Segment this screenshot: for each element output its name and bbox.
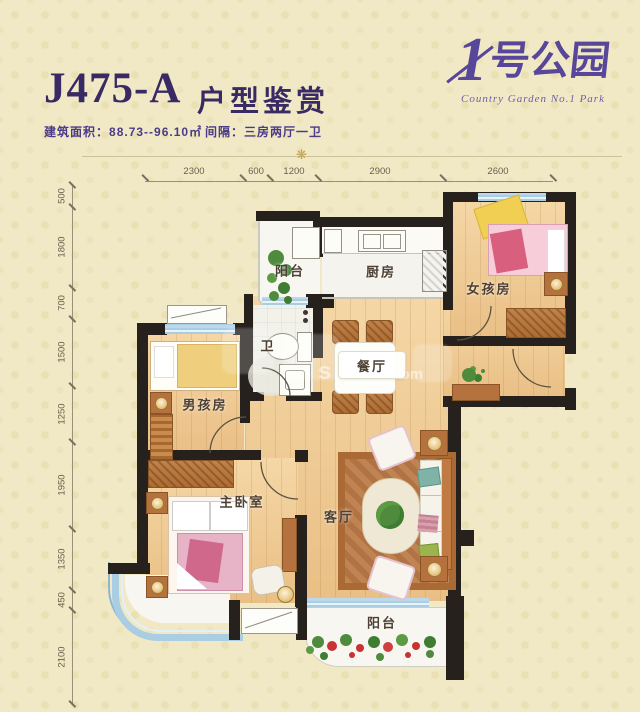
room-label-kitchen: 厨房 [366,262,396,281]
floor-plan: s .com 阳台 厨房 女孩房 卫 餐厅 男孩房 主卧室 客厅 阳台 [0,0,640,712]
room-label-balcony-top: 阳台 [275,261,305,280]
window-sill-diagonal [245,612,292,628]
room-label-balcony-bottom: 阳台 [367,613,397,632]
dining-label-pill: 餐厅 [338,351,406,379]
master-door-arc [261,462,298,499]
room-label-dining: 餐厅 [357,356,387,375]
boy-room-door-arc [210,417,246,453]
room-label-boy-room: 男孩房 [182,395,227,414]
entry-door-arc [513,349,551,387]
watermark-letter: s [318,358,331,386]
room-label-girl-room: 女孩房 [466,279,511,298]
room-label-master-bedroom: 主卧室 [219,492,264,511]
room-label-living-room: 客厅 [324,507,354,526]
girl-room-door-arc [457,306,491,340]
window-sill-diagonal [171,308,221,318]
room-label-bathroom: 卫 [260,336,275,355]
